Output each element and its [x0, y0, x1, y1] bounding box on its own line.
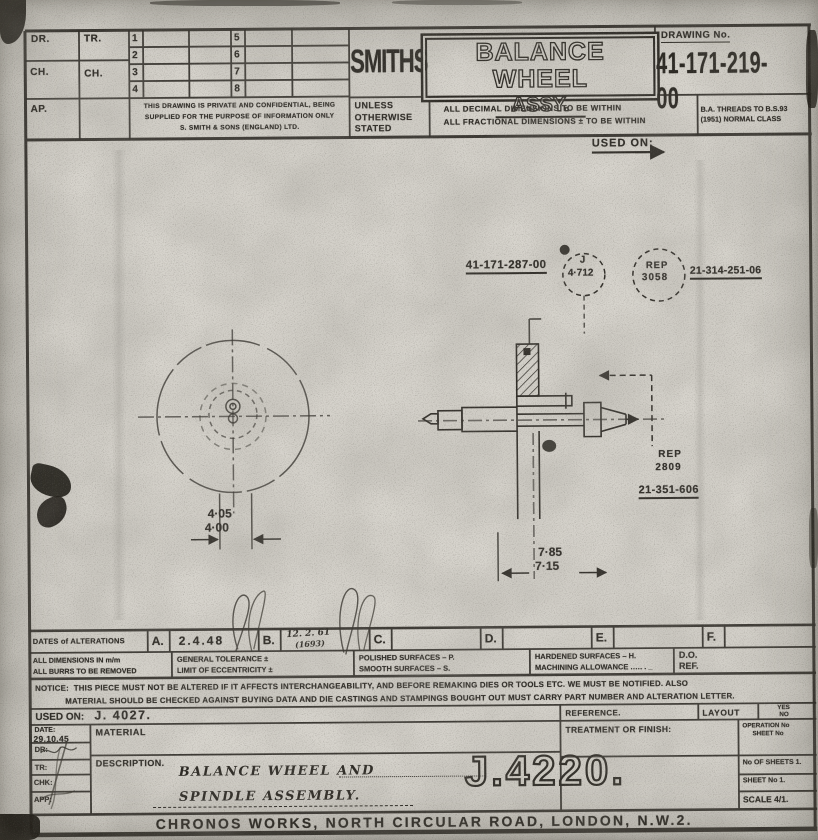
box-tr-label: TR.: [84, 33, 102, 44]
rep2-line1: REP: [658, 449, 682, 460]
wheel-front-view: [137, 329, 331, 551]
box-ap-label: AP.: [31, 104, 48, 115]
scan-corner-tab: [0, 814, 40, 840]
dates-alterations-label: DATES of ALTERATIONS: [33, 636, 125, 646]
alteration-letter-a: A.: [152, 634, 164, 648]
treatment-label: TREATMENT OR FINISH:: [565, 724, 671, 735]
box-ch-left-label: CH.: [30, 67, 49, 78]
balloon-value: 4·712: [568, 268, 594, 279]
balloon-letter: J: [580, 255, 586, 266]
chk-row-label: CHK:: [34, 778, 53, 787]
drawing-title-line1: BALANCE WHEEL: [427, 38, 653, 94]
app-row-label: APP:: [34, 795, 52, 804]
title-box: BALANCE WHEEL ASSY.: [425, 36, 655, 98]
scanned-drawing-sheet: DR. TR. CH. CH. AP. 1 2 3 4 5 6 7 8 THIS…: [0, 0, 818, 840]
confidential-note: THIS DRAWING IS PRIVATE AND CONFIDENTIAL…: [132, 99, 346, 134]
alteration-value-b: 12. 2. 61 (1693): [286, 627, 331, 651]
alteration-value-a: 2.4.48: [179, 633, 224, 647]
rev-num-2: 2: [132, 50, 138, 61]
rep1-line1: REP: [646, 260, 669, 271]
reference-label: REFERENCE.: [565, 708, 621, 717]
alteration-letter-f: F.: [707, 630, 716, 644]
eccentricity-note: LIMIT OF ECCENTRICITY ±: [177, 665, 273, 675]
vertical-centerline: [533, 433, 534, 579]
scan-edge-mark: [150, 0, 340, 6]
scan-edge-mark: [392, 0, 522, 5]
spindle-left-tip: [423, 414, 438, 424]
alteration-letter-e: E.: [596, 630, 607, 644]
description-dotted-line: [339, 765, 485, 777]
ink-dot: [542, 440, 556, 452]
rev-num-8: 8: [234, 83, 240, 94]
date-value: 29.10.45: [33, 734, 69, 744]
general-tolerance-note: GENERAL TOLERANCE ±: [177, 654, 268, 664]
box-dr-label: DR.: [31, 34, 50, 45]
used-on-header: USED ON:: [592, 137, 654, 149]
rev-num-1: 1: [132, 33, 138, 44]
horizontal-centerline: [418, 419, 668, 421]
layout-no: NO: [779, 711, 789, 718]
used-on-arrow: [592, 152, 664, 153]
used-on-value: J. 4027.: [94, 708, 151, 722]
box-ch-mid-label: CH.: [84, 68, 103, 79]
alteration-letter-c: C.: [374, 632, 386, 646]
rev-num-6: 6: [234, 49, 240, 60]
ba-thread-note: B.A. THREADS TO B.S.93 (1951) NORMAL CLA…: [701, 104, 788, 125]
sheets-count: No OF SHEETS 1.: [743, 759, 813, 768]
smooth-note: SMOOTH SURFACES – S.: [359, 664, 450, 674]
do-ref-line2: REF.: [679, 661, 699, 671]
do-ref-line1: D.O.: [679, 650, 698, 660]
rev-num-7: 7: [234, 66, 240, 77]
operation-sheet-label: SHEET No: [752, 730, 783, 737]
alteration-letter-d: D.: [485, 631, 497, 645]
scan-edge-mark: [809, 508, 818, 568]
rev-num-4: 4: [132, 84, 138, 95]
decimal-note: ALL DECIMAL DIMENSIONS TO BE WITHIN: [444, 103, 622, 113]
dims-mm-note: ALL DIMENSIONS IN m/m: [33, 655, 120, 665]
sheet-number: SHEET No 1.: [743, 777, 785, 784]
rep1-line2: 3058: [642, 272, 668, 283]
operation-no-label: OPERATION No: [742, 722, 789, 729]
part-number-top: 41-171-287-00: [466, 259, 547, 275]
description-label: DESCRIPTION.: [96, 758, 165, 769]
used-on-label: USED ON:: [35, 712, 84, 723]
fractional-note: ALL FRACTIONAL DIMENSIONS ± TO BE WITHIN: [444, 116, 646, 127]
part-number-right-top: 21-314-251-06: [690, 264, 762, 280]
rev-num-5: 5: [234, 32, 240, 43]
dim-length-upper: 7·85: [538, 545, 562, 559]
dim-length-lower: 7·15: [535, 559, 559, 573]
burrs-note: ALL BURRS TO BE REMOVED: [33, 666, 137, 676]
spindle-pin: [517, 396, 572, 406]
dr-row-label: DR:: [35, 745, 48, 754]
layout-label: LAYOUT: [702, 707, 740, 717]
description-dashed-underline: [153, 795, 413, 808]
drawing-no-label: DRAWING No.: [661, 29, 730, 43]
rep2-line2: 2809: [655, 462, 681, 473]
job-number: J.4220.: [465, 746, 627, 795]
ink-dot: [560, 245, 570, 255]
hardened-note: HARDENED SURFACES – H.: [535, 651, 636, 661]
scale-label: SCALE 4/1.: [743, 794, 788, 804]
machining-note: MACHINING ALLOWANCE .…. . _: [535, 662, 653, 672]
dim-hub-lower: 4·00: [205, 520, 229, 534]
alteration-letter-b: B.: [263, 633, 275, 647]
dim-hub-upper: 4·05: [208, 506, 232, 520]
unless-otherwise-stated: UNLESS OTHERWISE STATED: [354, 100, 412, 135]
rev-num-3: 3: [132, 67, 138, 78]
smiths-logo: SMITHS: [350, 42, 427, 82]
tr-row-label: TR:: [35, 763, 48, 772]
scan-edge-mark: [806, 30, 818, 108]
material-label: MATERIAL: [95, 727, 146, 737]
part-number-right-low: 21-351-606: [639, 484, 699, 499]
polished-note: POLISHED SURFACES – P.: [359, 653, 455, 663]
